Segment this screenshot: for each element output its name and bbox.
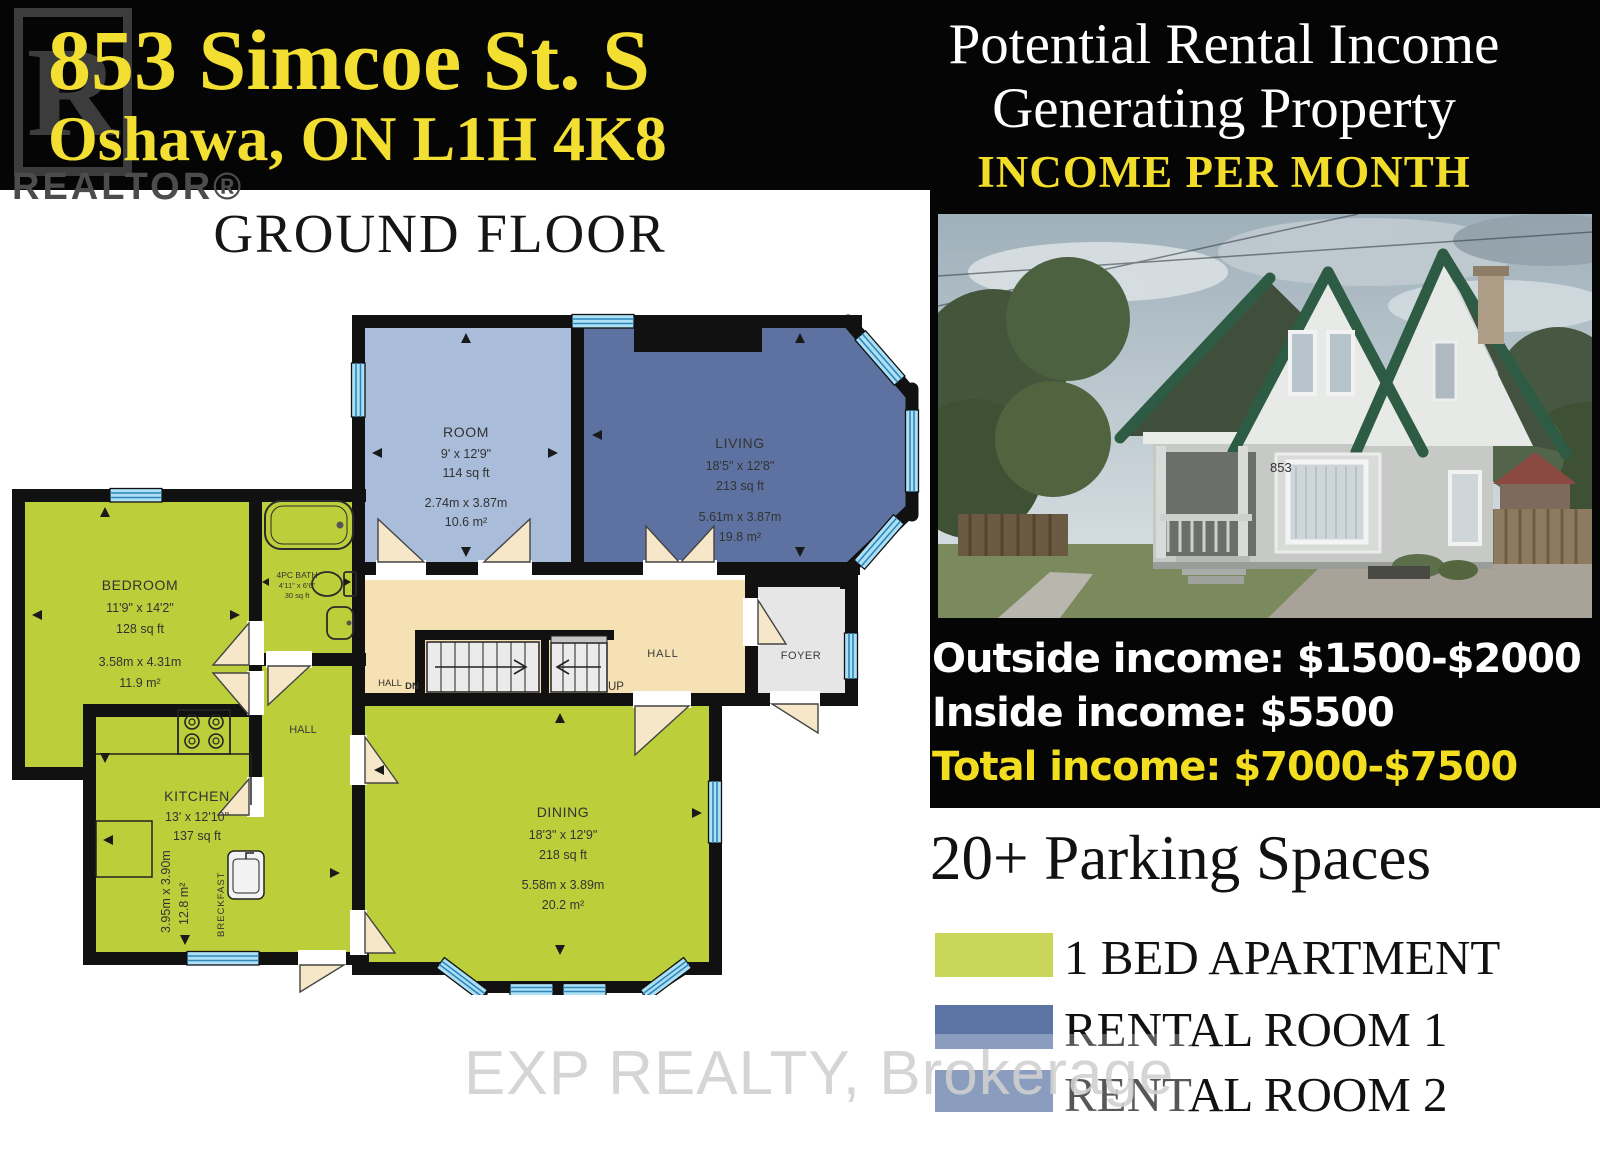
parking-title: 20+ Parking Spaces — [930, 822, 1431, 895]
brokerage-watermark: EXP REALTY, Brokerage — [446, 1034, 1192, 1113]
floorplan-title: GROUND FLOOR — [150, 202, 730, 265]
svg-text:213 sq ft: 213 sq ft — [716, 479, 764, 493]
svg-text:137 sq ft: 137 sq ft — [173, 829, 221, 843]
svg-text:11'9" x 14'2": 11'9" x 14'2" — [106, 601, 174, 615]
hall-stair-label: HALL — [378, 678, 402, 689]
svg-text:11.9 m²: 11.9 m² — [119, 676, 160, 690]
legend-swatch-apartment — [935, 933, 1053, 977]
svg-text:4'11" x 6'6": 4'11" x 6'6" — [279, 581, 316, 590]
svg-text:10.6 m²: 10.6 m² — [445, 515, 487, 529]
svg-text:20.2 m²: 20.2 m² — [542, 898, 584, 912]
total-income: Total income: $7000-$7500 — [932, 744, 1596, 790]
hall-main-label: HALL — [647, 648, 679, 660]
staircase — [427, 636, 607, 692]
svg-text:5.58m x 3.89m: 5.58m x 3.89m — [522, 878, 605, 892]
svg-text:LIVING: LIVING — [715, 435, 765, 451]
svg-text:9' x 12'9": 9' x 12'9" — [441, 447, 491, 461]
svg-text:2.74m x 3.87m: 2.74m x 3.87m — [425, 496, 508, 510]
svg-text:12.8 m²: 12.8 m² — [177, 883, 191, 925]
svg-text:BEDROOM: BEDROOM — [102, 577, 179, 593]
house-photo: 853 — [938, 214, 1592, 618]
panel-subtitle: INCOME PER MONTH — [878, 146, 1570, 198]
svg-text:5.61m x 3.87m: 5.61m x 3.87m — [699, 510, 782, 524]
outside-income: Outside income: $1500-$2000 — [932, 636, 1596, 682]
flyer-853-simcoe: { "header": { "address_line1": "853 Simc… — [0, 0, 1600, 1164]
breakfast-label: BRECKFAST — [216, 872, 227, 938]
kitchen-sink — [228, 851, 264, 899]
address-line-1: 853 Simcoe St. S — [48, 10, 650, 110]
svg-text:13' x 12'10": 13' x 12'10" — [165, 810, 229, 824]
svg-text:DINING: DINING — [537, 804, 590, 820]
svg-text:18'5" x 12'8": 18'5" x 12'8" — [706, 459, 775, 473]
floorplan: ROOM 9' x 12'9" 114 sq ft 2.74m x 3.87m … — [0, 285, 920, 995]
up-label: UP — [608, 681, 624, 693]
legend-label-apartment: 1 BED APARTMENT — [1064, 929, 1500, 986]
svg-text:3.58m x 4.31m: 3.58m x 4.31m — [99, 655, 182, 669]
hall-small-label: HALL — [289, 724, 317, 736]
svg-text:19.8 m²: 19.8 m² — [719, 530, 761, 544]
house-number: 853 — [1270, 460, 1292, 475]
panel-title-line-1: Potential Rental Income — [878, 12, 1570, 77]
inside-income: Inside income: $5500 — [932, 690, 1596, 736]
svg-text:KITCHEN: KITCHEN — [164, 788, 230, 804]
svg-text:114 sq ft: 114 sq ft — [442, 466, 490, 480]
svg-text:4PC BATH: 4PC BATH — [277, 570, 318, 580]
address-line-2: Oshawa, ON L1H 4K8 — [48, 102, 667, 176]
foyer-label: FOYER — [781, 650, 821, 662]
svg-text:30 sq ft: 30 sq ft — [285, 591, 311, 600]
svg-text:218 sq ft: 218 sq ft — [539, 848, 587, 862]
dn-label: DN — [405, 681, 419, 692]
svg-text:ROOM: ROOM — [443, 424, 489, 440]
svg-text:3.95m x 3.90m: 3.95m x 3.90m — [159, 850, 173, 933]
svg-text:128 sq ft: 128 sq ft — [116, 622, 164, 636]
svg-text:18'3" x 12'9": 18'3" x 12'9" — [529, 828, 598, 842]
panel-title-line-2: Generating Property — [878, 76, 1570, 141]
